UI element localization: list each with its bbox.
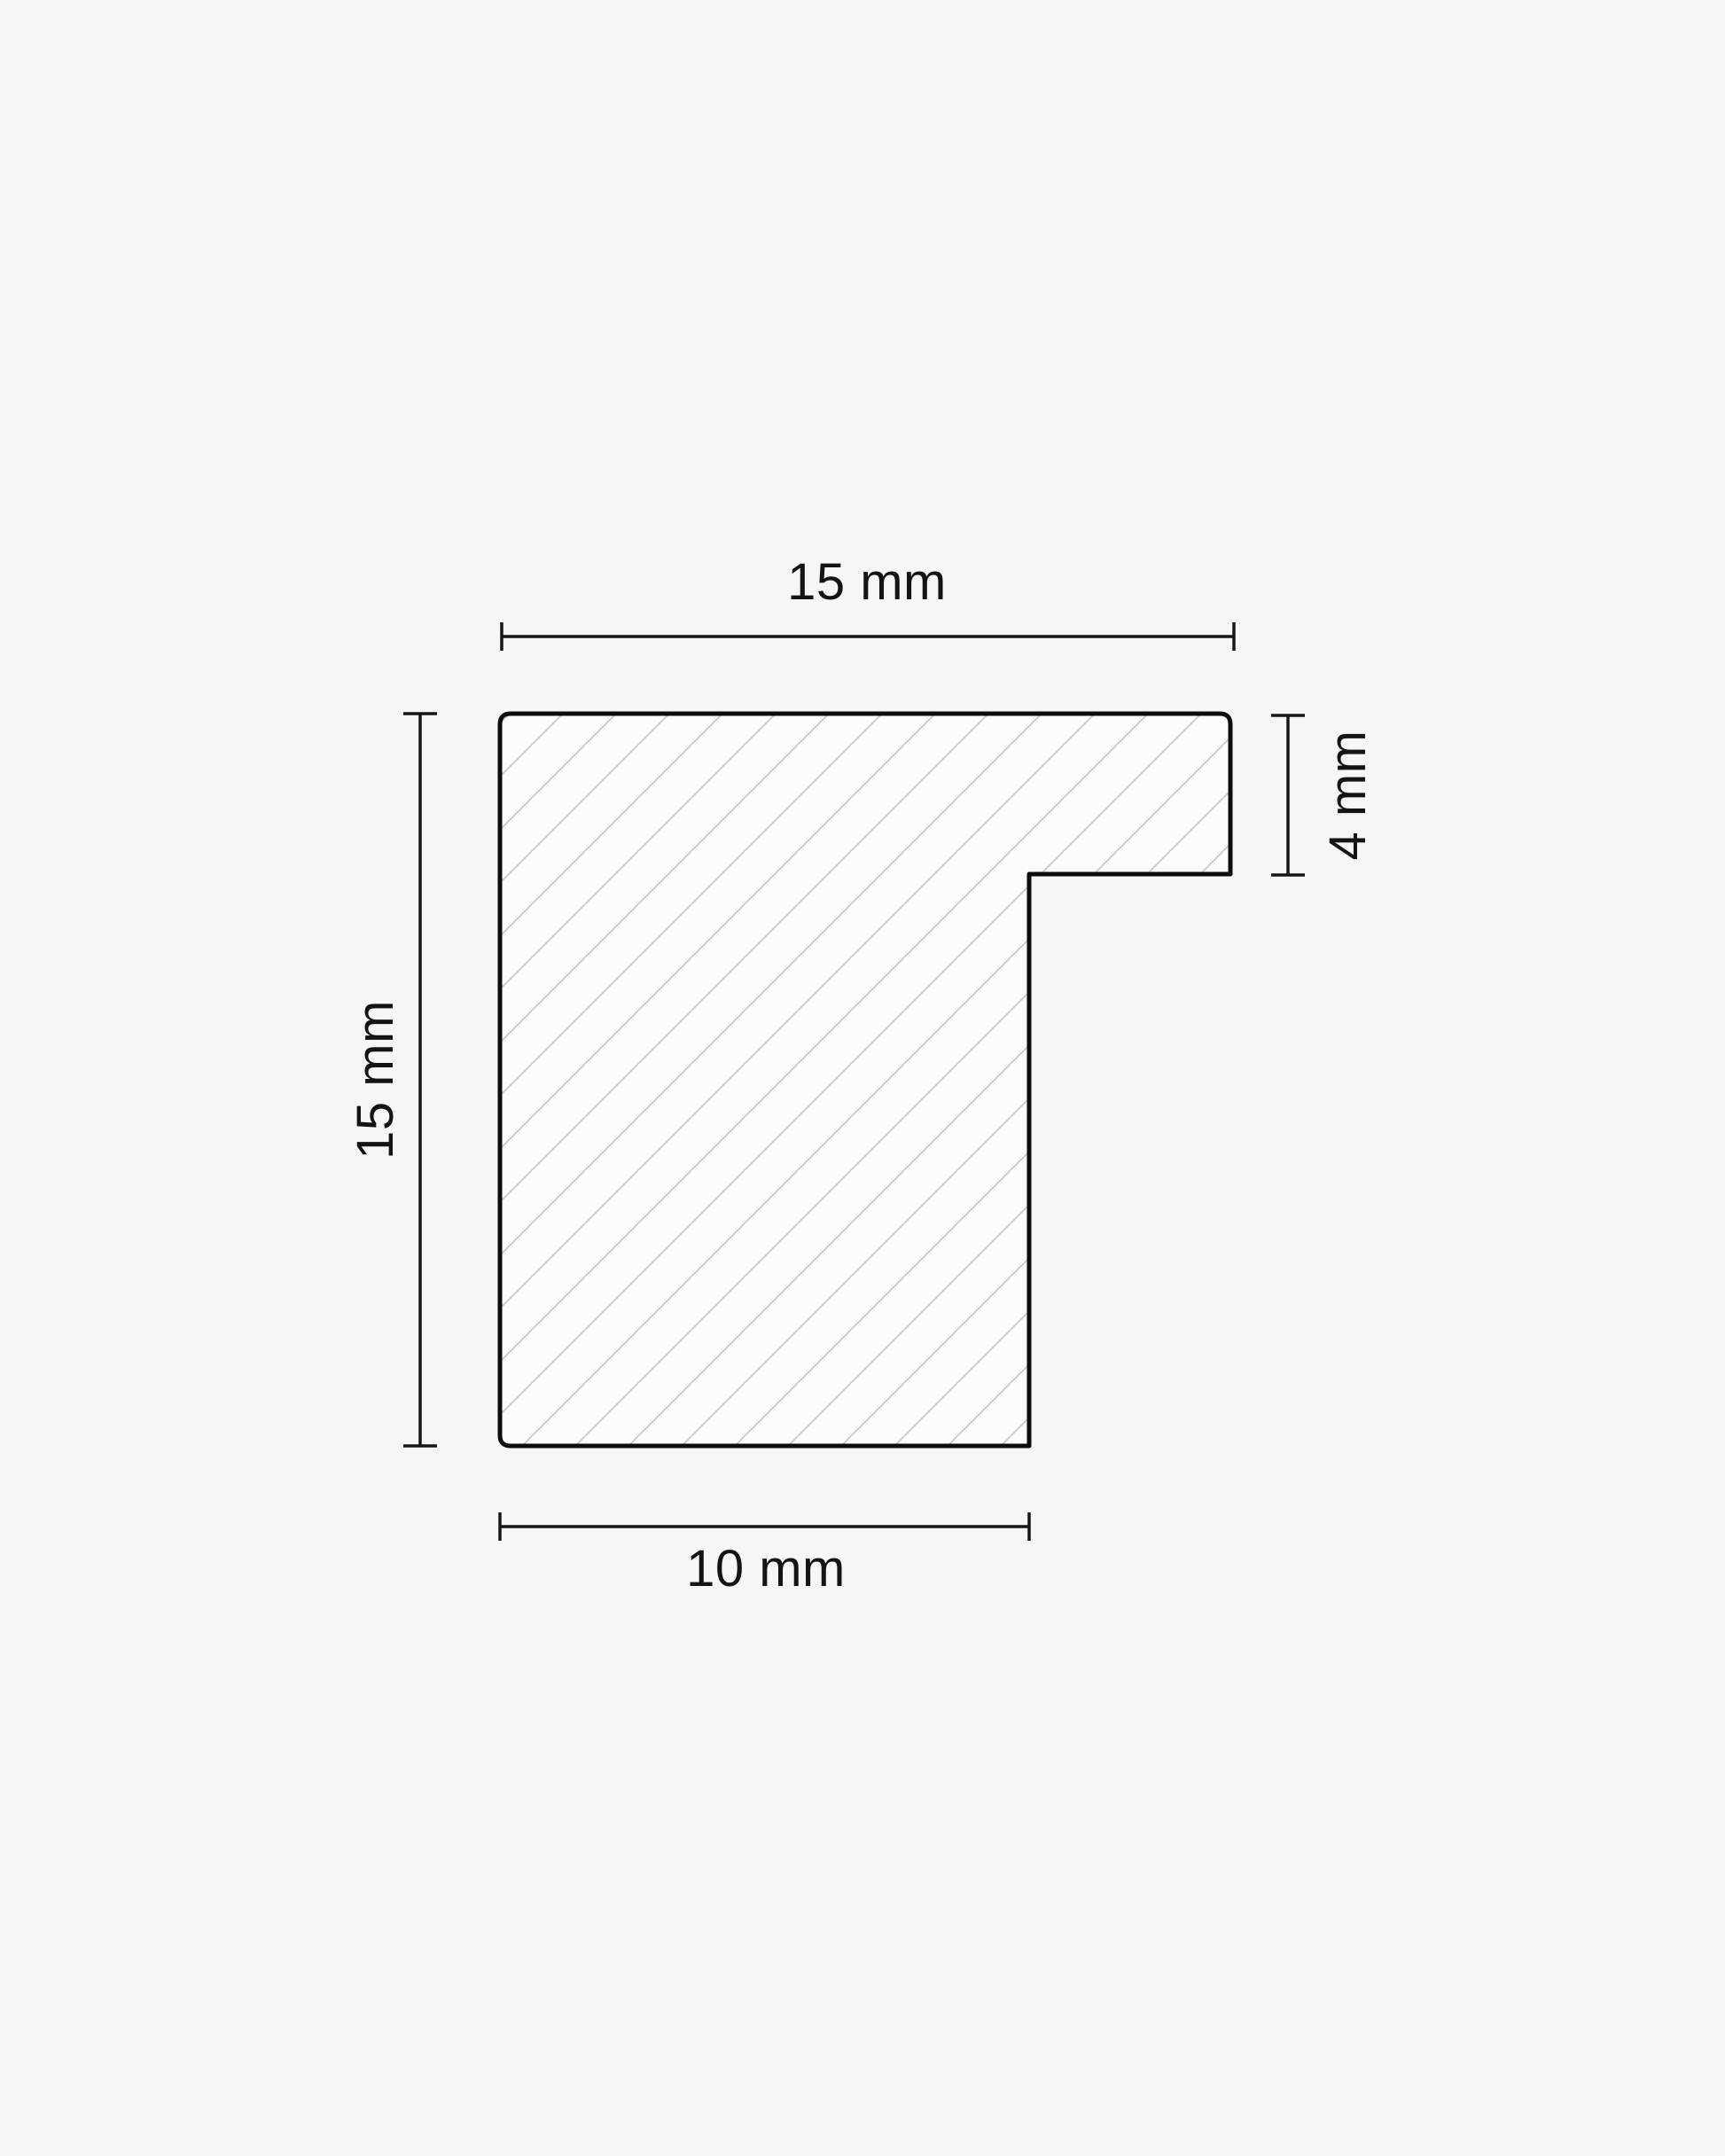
dimension-top-width: 15 mm <box>502 553 1234 651</box>
dimension-rebate-height: 4 mm <box>1271 715 1377 875</box>
dimension-label-profile-height: 15 mm <box>347 1000 404 1160</box>
dimension-profile-height: 15 mm <box>347 714 437 1446</box>
dimension-base-width: 10 mm <box>500 1512 1029 1597</box>
dimension-label-rebate-height: 4 mm <box>1319 730 1377 861</box>
moulding-profile-shape <box>500 714 1230 1446</box>
profile-cross-section-canvas: 15 mm 4 mm 15 mm 10 mm <box>0 0 1725 2156</box>
dimension-label-top-width: 15 mm <box>787 553 947 611</box>
frame-profile-diagram: 15 mm 4 mm 15 mm 10 mm <box>0 0 1725 2156</box>
dimension-label-base-width: 10 mm <box>686 1540 846 1597</box>
